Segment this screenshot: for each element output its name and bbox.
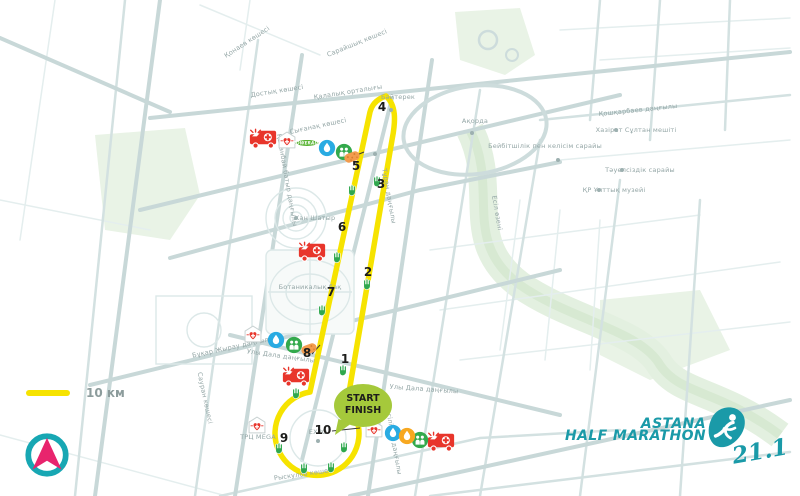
start-finish-bubble: START FINISH	[334, 384, 392, 427]
legend-distance-label: 10 км	[86, 386, 125, 400]
route-color-swatch	[26, 390, 70, 396]
finish-label: FINISH	[334, 405, 392, 417]
legend: 10 км	[26, 386, 125, 400]
logo-line2: HALF MARATHON	[565, 430, 706, 442]
event-logo: ASTANA HALF MARATHON	[565, 418, 706, 442]
map: Қонаев көшесіДостық көшесіҚалалық орталы…	[0, 0, 800, 496]
start-label: START	[334, 393, 392, 405]
compass-north-icon	[22, 430, 72, 480]
parks	[95, 8, 780, 435]
